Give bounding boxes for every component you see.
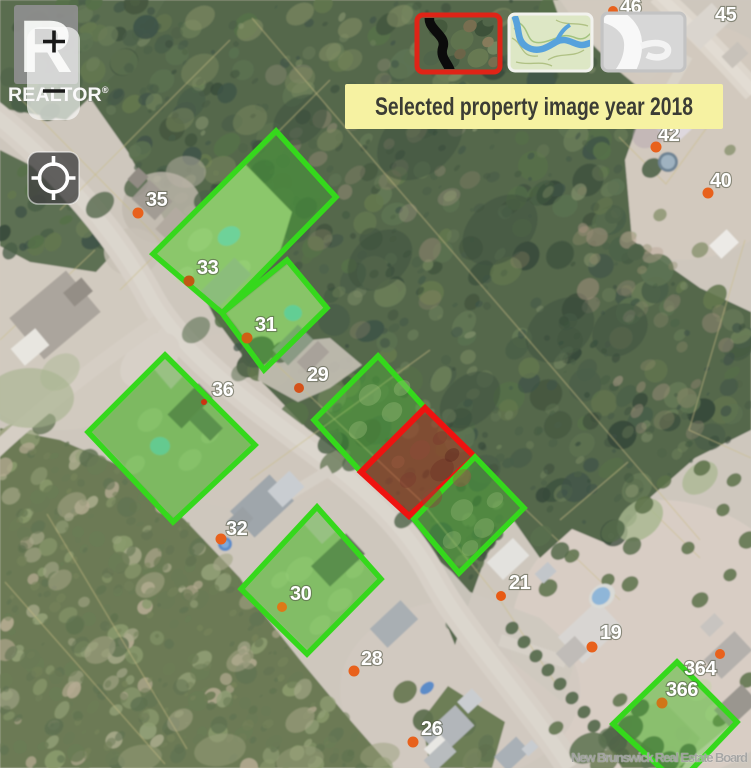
svg-text:33: 33 — [197, 257, 219, 279]
svg-text:31: 31 — [255, 314, 277, 336]
svg-text:26: 26 — [421, 718, 443, 740]
svg-text:30: 30 — [290, 583, 312, 605]
svg-text:19: 19 — [600, 622, 622, 644]
svg-text:36: 36 — [212, 379, 234, 401]
svg-text:40: 40 — [710, 170, 732, 192]
svg-text:21: 21 — [509, 572, 531, 594]
svg-text:29: 29 — [307, 364, 329, 386]
svg-text:366: 366 — [666, 679, 698, 701]
svg-text:New Brunswick Real Estate Boar: New Brunswick Real Estate Board — [571, 750, 748, 765]
svg-text:Selected property image year 2: Selected property image year 2018 — [375, 93, 693, 121]
svg-text:35: 35 — [146, 189, 168, 211]
svg-text:364: 364 — [684, 658, 717, 680]
svg-text:28: 28 — [361, 648, 383, 670]
svg-text:32: 32 — [226, 518, 248, 540]
svg-text:45: 45 — [715, 4, 737, 26]
